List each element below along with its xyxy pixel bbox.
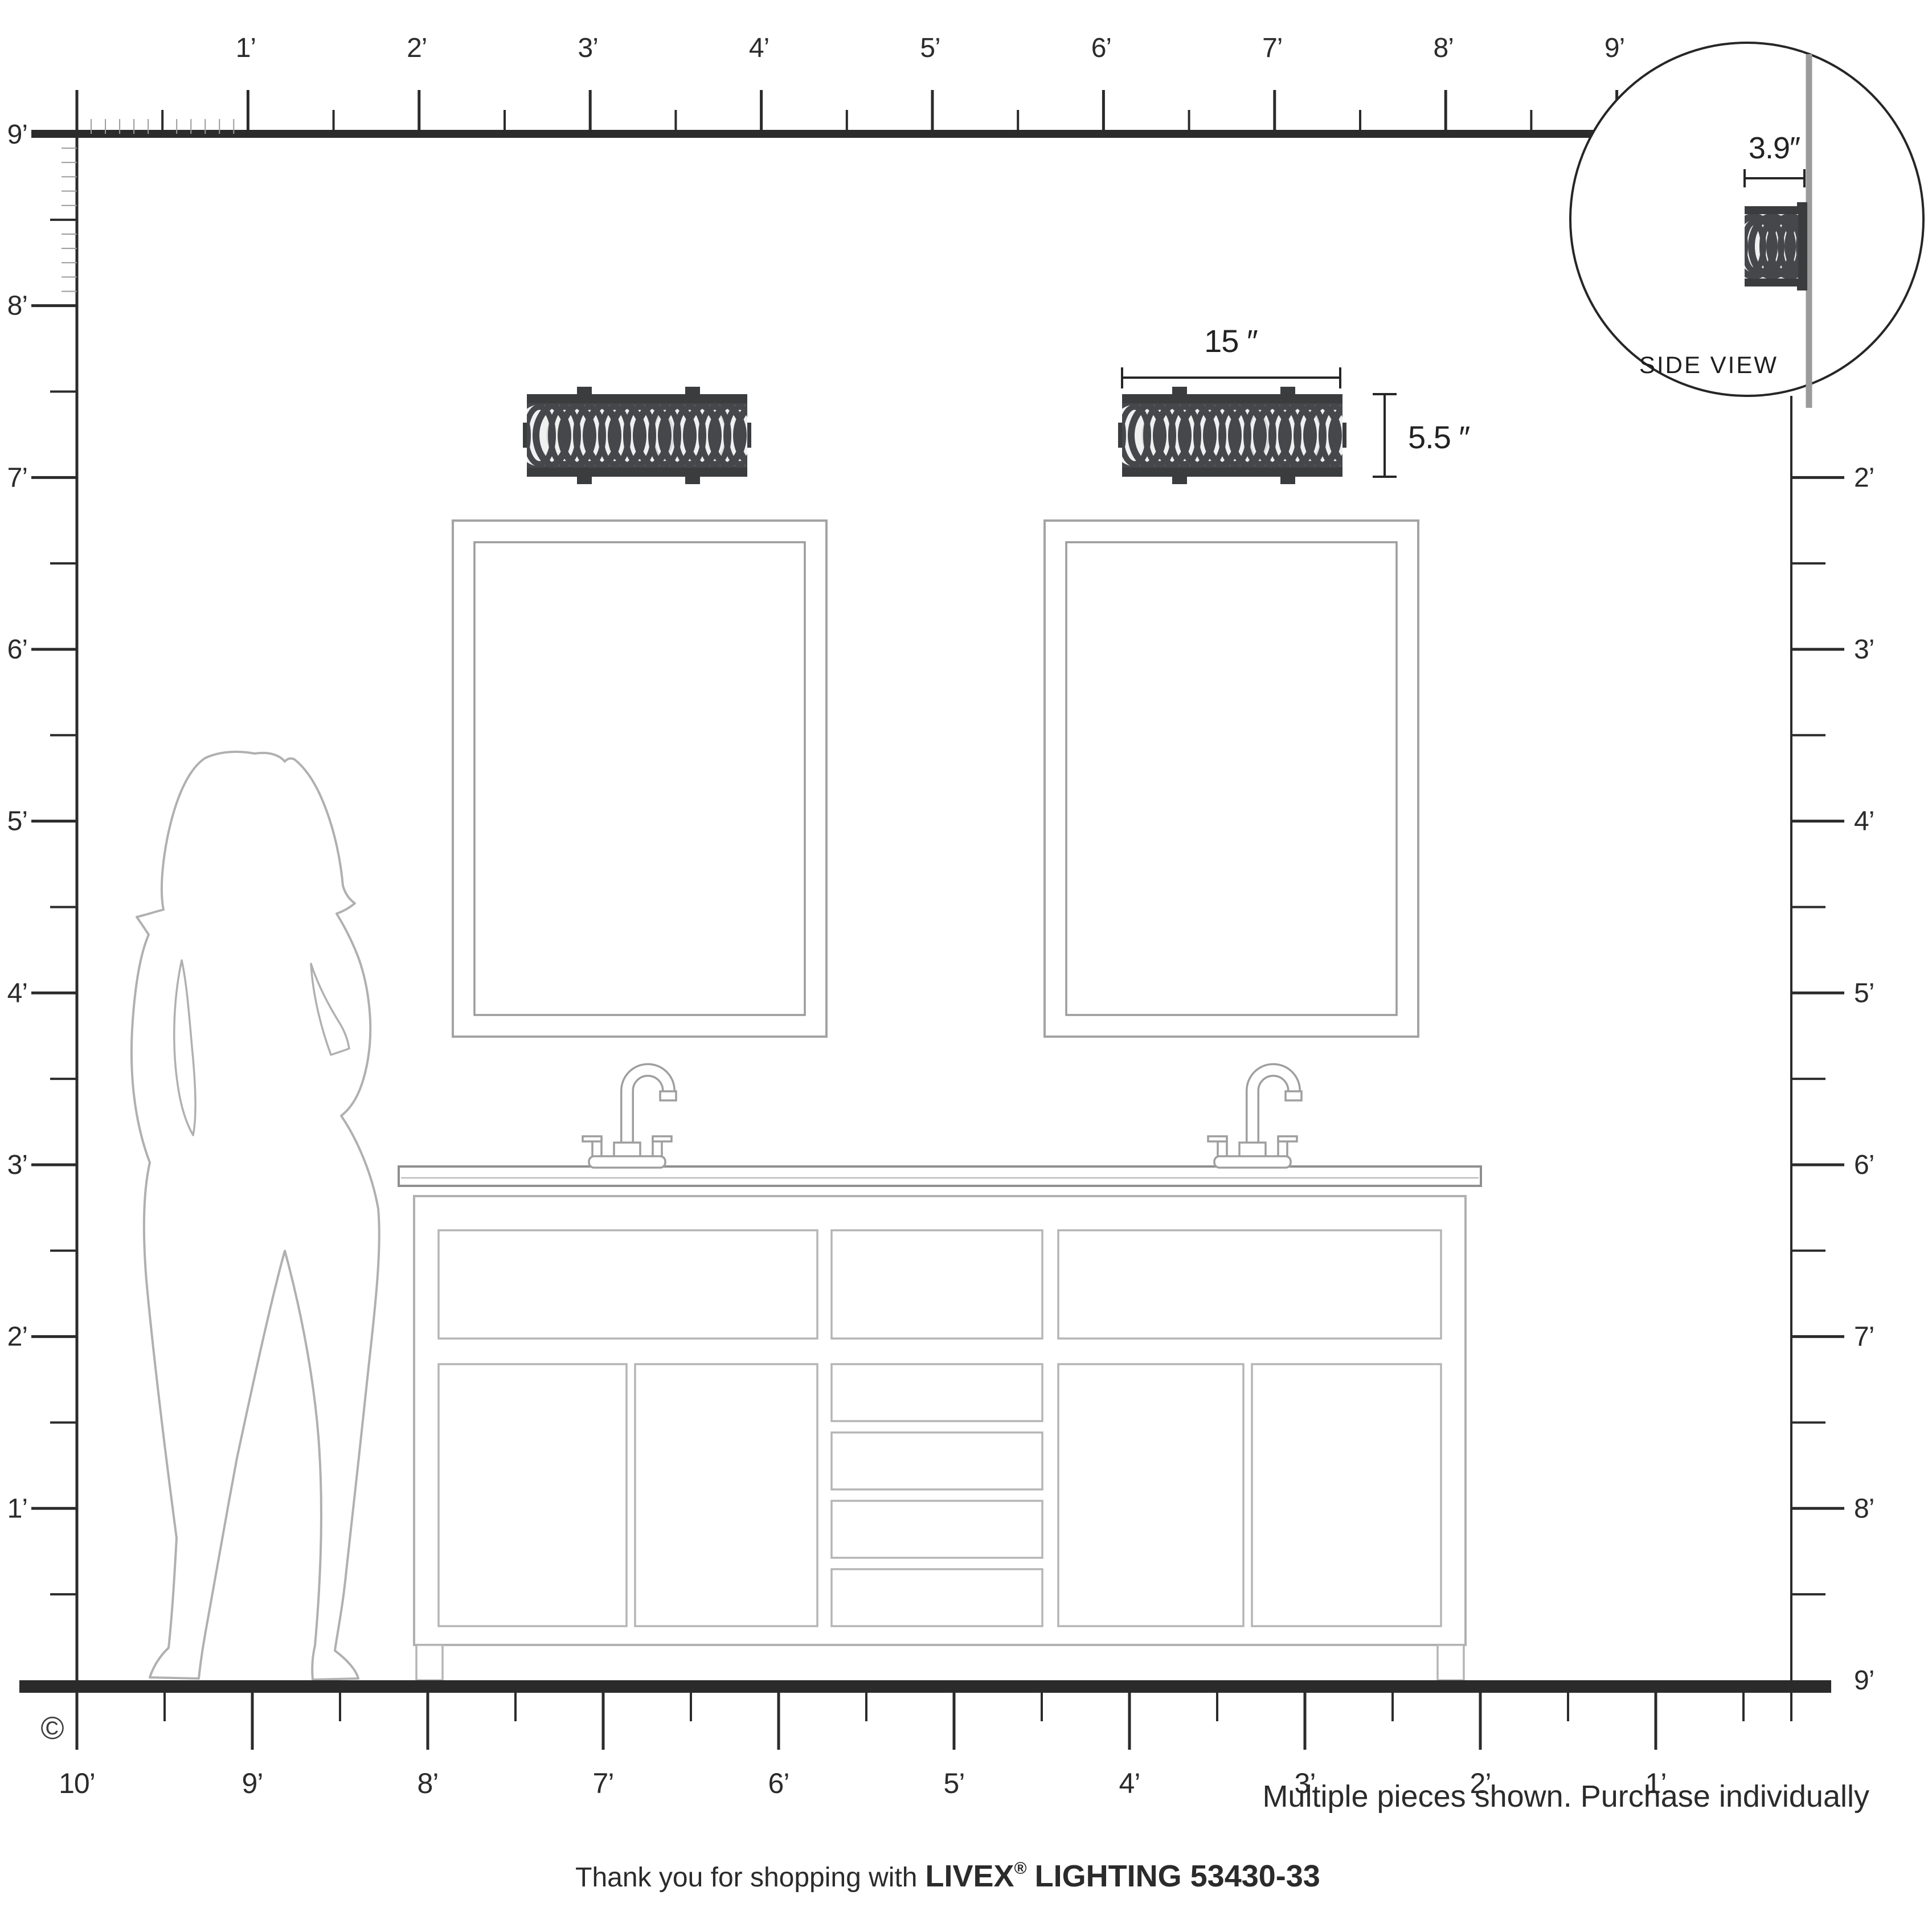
right-ruler-label: 2’: [1854, 462, 1874, 493]
depth-dimension: 3.9″: [1745, 131, 1804, 187]
top-ruler-label: 8’: [1434, 33, 1454, 63]
thanks-line: Thank you for shopping withLIVEX®LIGHTIN…: [575, 1859, 1320, 1893]
copyright-symbol: ©: [40, 1710, 64, 1746]
width-dimension: 15 ″: [1122, 323, 1340, 388]
fixture-rail-bottom: [1122, 468, 1342, 477]
figure-outline: [132, 752, 379, 1680]
countertop: [399, 1166, 1481, 1186]
lattice-ellipse-small: [751, 407, 779, 464]
drawer-center-1: [832, 1364, 1042, 1421]
fixture-rail-bottom: [527, 468, 747, 477]
spec-sheet: 15 ″ 5.5 ″ 1’2’3’4’5’6’7’8’9’ 9’8’7’6’5’…: [0, 0, 1932, 1932]
bottom-ruler-label: 9’: [242, 1767, 263, 1799]
faucet-escutcheon: [614, 1143, 640, 1157]
brand-name: LIVEX: [926, 1859, 1014, 1893]
leg-right: [1438, 1645, 1464, 1680]
left-ruler-label: 4’: [7, 978, 27, 1008]
vanity-light-left: [501, 387, 793, 484]
lattice-ellipse-small: [1346, 407, 1374, 464]
mount-tab: [685, 476, 700, 484]
depth-value: 3.9″: [1749, 131, 1800, 165]
top-ruler-label: 9’: [1604, 33, 1624, 63]
right-ruler-label: 7’: [1854, 1322, 1874, 1352]
bottom-ruler-label: 6’: [768, 1767, 789, 1799]
door-right-1: [1058, 1364, 1243, 1626]
mirror-right: [1045, 521, 1418, 1037]
top-ruler-label: 4’: [749, 33, 769, 63]
fixture-rail-top: [1122, 394, 1342, 403]
drawer-center-4: [832, 1569, 1042, 1626]
mount-tab: [577, 387, 592, 395]
mount-tab: [1280, 387, 1295, 395]
bottom-ruler-label: 8’: [417, 1767, 439, 1799]
left-ruler-label: 5’: [7, 807, 27, 837]
purchase-note: Multiple pieces shown. Purchase individu…: [1262, 1779, 1869, 1814]
faucet-base: [589, 1156, 665, 1168]
top-ruler: 1’2’3’4’5’6’7’8’9’: [31, 33, 1624, 138]
bottom-ruler-label: 10’: [59, 1767, 95, 1799]
top-ruler-label: 7’: [1262, 33, 1282, 63]
fixture-rail-top: [527, 394, 747, 403]
mount-plate: [1797, 202, 1807, 290]
left-ruler: 9’8’7’6’5’4’3’2’1’: [7, 120, 77, 1750]
vanity: [399, 1166, 1481, 1680]
top-ruler-bar: [31, 130, 1598, 138]
bottom-ruler-bar: [19, 1680, 1831, 1693]
faucet-aerator: [1286, 1091, 1301, 1100]
registered-mark: ®: [1014, 1859, 1027, 1878]
bottom-ruler-label: 5’: [944, 1767, 965, 1799]
right-ruler-label: 4’: [1854, 807, 1874, 837]
door-left-1: [439, 1364, 627, 1626]
left-ruler-label: 6’: [7, 635, 27, 665]
right-ruler-label: 8’: [1854, 1493, 1874, 1524]
faucet-handle-left-lever: [1208, 1136, 1227, 1141]
right-ruler-label: 6’: [1854, 1150, 1874, 1180]
vanity-light-right: [1096, 387, 1389, 484]
mount-tab: [1280, 476, 1295, 484]
mount-tab: [1172, 476, 1187, 484]
leg-left: [416, 1645, 443, 1680]
right-ruler-label: 3’: [1854, 635, 1874, 665]
height-value: 5.5 ″: [1408, 419, 1470, 455]
door-right-2: [1252, 1364, 1441, 1626]
scale-figure: [132, 752, 379, 1680]
scene: 15 ″ 5.5 ″: [132, 323, 1481, 1680]
left-ruler-label: 7’: [7, 462, 27, 493]
brand-suffix: LIGHTING 53430-33: [1035, 1859, 1320, 1893]
drawer-center-3: [832, 1501, 1042, 1558]
left-ruler-label: 9’: [7, 120, 27, 150]
bottom-ruler-label: 7’: [593, 1767, 614, 1799]
mirror-left: [453, 521, 826, 1037]
faucet-handle-right-lever: [653, 1136, 672, 1141]
door-left-2: [635, 1364, 817, 1626]
mount-tab: [685, 387, 700, 395]
bottom-ruler-label: 4’: [1119, 1767, 1140, 1799]
fixture-rail-top: [1745, 206, 1802, 214]
right-ruler: 2’3’4’5’6’7’8’9’: [1791, 396, 1874, 1721]
top-ruler-label: 5’: [920, 33, 940, 63]
left-ruler-label: 1’: [7, 1493, 27, 1524]
drawer-top-right: [1058, 1230, 1441, 1339]
drawer-top-center: [832, 1230, 1042, 1339]
side-view-label: SIDE VIEW: [1639, 351, 1778, 378]
left-ruler-label: 3’: [7, 1150, 27, 1180]
side-view-inset: 3.9″ SIDE VIEW: [1570, 43, 1923, 408]
faucet-left: [583, 1070, 676, 1168]
height-dimension: 5.5 ″: [1373, 394, 1470, 477]
faucet-handle-left-lever: [583, 1136, 601, 1141]
width-value: 15 ″: [1204, 323, 1258, 359]
mount-tab: [577, 476, 592, 484]
mirror-glass: [1066, 542, 1397, 1015]
top-ruler-label: 3’: [578, 33, 598, 63]
thanks-prefix: Thank you for shopping with: [575, 1863, 917, 1893]
faucet-aerator: [660, 1091, 676, 1100]
top-ruler-label: 1’: [236, 33, 256, 63]
faucet-right: [1208, 1070, 1301, 1168]
fixture-rail-bottom: [1745, 279, 1802, 286]
drawer-center-2: [832, 1432, 1042, 1489]
top-ruler-label: 2’: [407, 33, 427, 63]
right-ruler-label: 5’: [1854, 978, 1874, 1008]
faucet-handle-right-lever: [1278, 1136, 1297, 1141]
drawer-top-left: [439, 1230, 817, 1339]
top-ruler-label: 6’: [1091, 33, 1111, 63]
mount-tab: [1172, 387, 1187, 395]
left-ruler-label: 2’: [7, 1322, 27, 1352]
mirror-glass: [474, 542, 805, 1015]
faucet-escutcheon: [1239, 1143, 1266, 1157]
right-ruler-label: 9’: [1854, 1665, 1874, 1696]
left-ruler-label: 8’: [7, 291, 27, 321]
faucet-base: [1214, 1156, 1291, 1168]
